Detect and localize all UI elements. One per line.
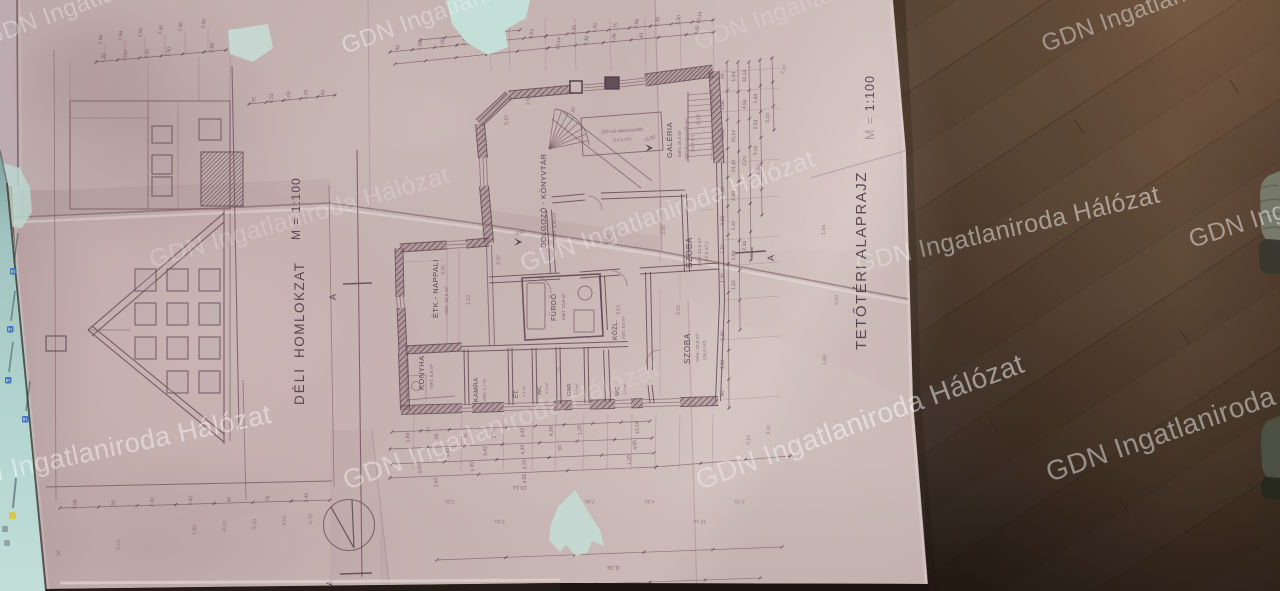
svg-text:in: in <box>11 269 15 275</box>
svg-text:in: in <box>6 378 10 384</box>
svg-text:in: in <box>8 327 12 333</box>
svg-text:in: in <box>23 417 27 423</box>
